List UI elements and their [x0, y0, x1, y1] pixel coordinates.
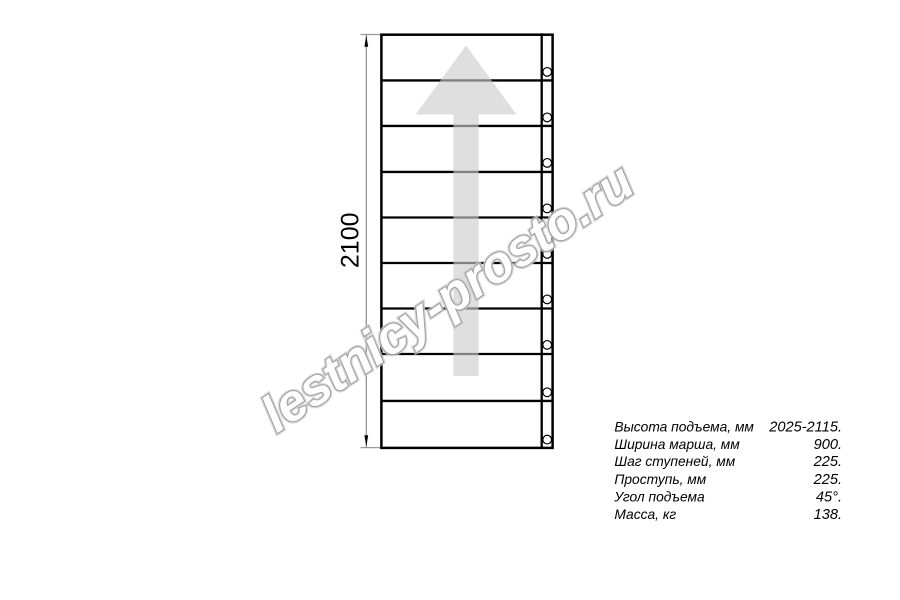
- svg-text:Угол подъема: Угол подъема: [613, 489, 705, 504]
- svg-text:2025-2115.: 2025-2115.: [768, 419, 842, 435]
- svg-text:2100: 2100: [337, 212, 365, 268]
- svg-text:900.: 900.: [814, 437, 842, 453]
- svg-text:Масса, кг: Масса, кг: [614, 507, 676, 522]
- svg-text:Высота подъема, мм: Высота подъема, мм: [614, 419, 754, 434]
- svg-text:225.: 225.: [813, 454, 842, 470]
- svg-text:225.: 225.: [813, 472, 842, 488]
- svg-text:138.: 138.: [814, 507, 842, 523]
- svg-text:45°.: 45°.: [816, 489, 842, 505]
- svg-text:Проступь, мм: Проступь, мм: [614, 472, 706, 487]
- svg-text:Ширина марша, мм: Ширина марша, мм: [614, 437, 740, 452]
- svg-text:Шаг ступеней, мм: Шаг ступеней, мм: [614, 454, 735, 469]
